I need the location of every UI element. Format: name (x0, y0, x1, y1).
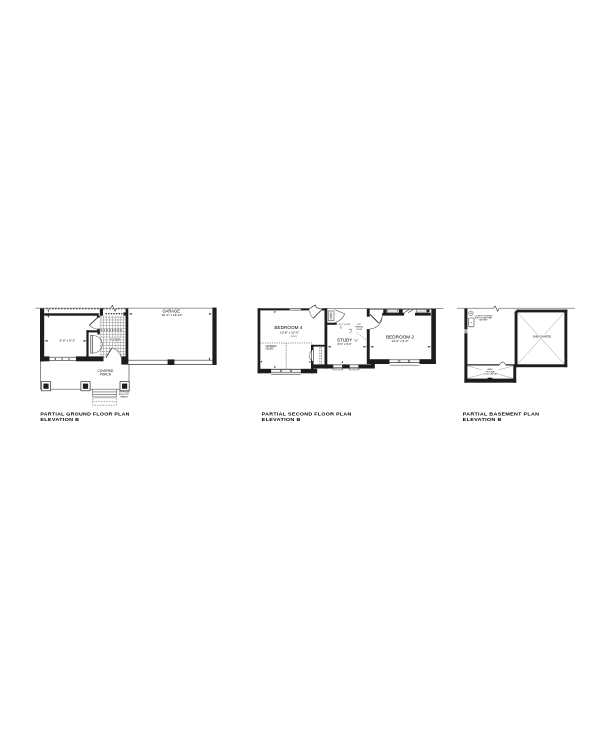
svg-text:DOOR: DOOR (356, 329, 362, 331)
svg-text:COLD CELLAR: COLD CELLAR (483, 373, 499, 376)
svg-text:PARTIAL SECOND FLOOR PLAN: PARTIAL SECOND FLOOR PLAN (262, 412, 352, 417)
svg-text:ELEVATION B: ELEVATION B (463, 417, 502, 422)
svg-text:HP: HP (470, 313, 472, 315)
svg-text:ELEVATION B: ELEVATION B (40, 417, 79, 422)
svg-text:ELEVATION B: ELEVATION B (262, 417, 301, 422)
svg-text:UNEXCAVATED: UNEXCAVATED (533, 335, 552, 339)
svg-text:(13'-0"): (13'-0") (291, 336, 297, 338)
svg-text:PORCH: PORCH (100, 373, 111, 377)
svg-text:9'-0" x 9'-2": 9'-0" x 9'-2" (60, 340, 76, 343)
svg-text:GRADE: GRADE (120, 395, 128, 398)
svg-text:8'-0" x 9'-0": 8'-0" x 9'-0" (338, 343, 352, 346)
svg-text:12'-0" x 9'-0": 12'-0" x 9'-0" (392, 339, 409, 343)
svg-text:PARTIAL GROUND FLOOR PLAN: PARTIAL GROUND FLOOR PLAN (40, 412, 130, 417)
svg-text:(5'-1" x 5'-8"): (5'-1" x 5'-8") (339, 324, 351, 326)
svg-text:FOYER: FOYER (110, 338, 122, 342)
svg-text:STUDY: STUDY (337, 337, 352, 342)
svg-text:10'-4" x 19'-10": 10'-4" x 19'-10" (162, 313, 183, 317)
svg-text:10'-8" x 12'-0": 10'-8" x 12'-0" (280, 330, 299, 334)
svg-text:BEDROOM 4: BEDROOM 4 (274, 325, 303, 330)
svg-text:CEILING: CEILING (266, 349, 274, 351)
svg-text:PARTIAL BASEMENT PLAN: PARTIAL BASEMENT PLAN (463, 412, 540, 417)
svg-text:LINEN: LINEN (330, 312, 332, 318)
svg-text:MAY VARY: MAY VARY (480, 318, 489, 321)
svg-text:BEDROOM 2: BEDROOM 2 (386, 334, 415, 339)
svg-text:GARAGE: GARAGE (162, 308, 180, 313)
